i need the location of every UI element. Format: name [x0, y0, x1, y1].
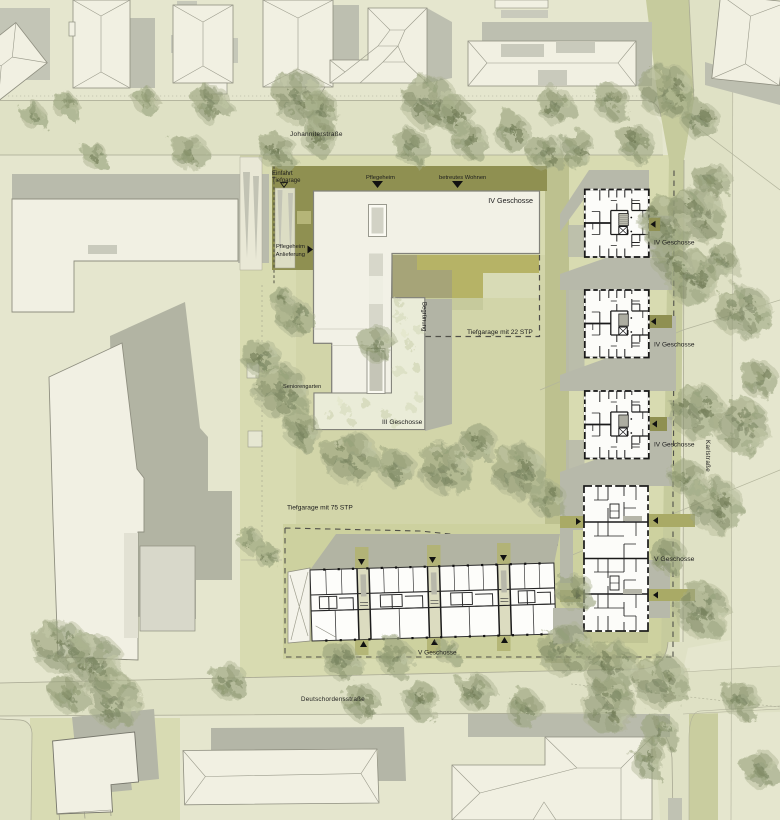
svg-text:Begrünung: Begrünung [421, 302, 427, 331]
svg-text:Pflegeheim: Pflegeheim [276, 244, 305, 250]
svg-text:Johanniterstraße: Johanniterstraße [290, 131, 343, 138]
svg-text:V Geschosse: V Geschosse [418, 650, 457, 657]
svg-text:Tiefgarage mit 22 STP: Tiefgarage mit 22 STP [467, 329, 533, 336]
svg-text:IV Geschosse: IV Geschosse [654, 342, 695, 349]
svg-text:Karlstraße: Karlstraße [704, 440, 711, 472]
svg-text:III Geschosse: III Geschosse [382, 419, 423, 426]
svg-text:Pflegeheim: Pflegeheim [366, 175, 395, 181]
svg-text:IV Geschosse: IV Geschosse [488, 196, 533, 205]
svg-text:Anlieferung: Anlieferung [276, 252, 305, 258]
svg-text:Einfahrt: Einfahrt [272, 171, 293, 177]
svg-text:betreutes Wohnen: betreutes Wohnen [439, 175, 486, 181]
svg-text:IV Geschosse: IV Geschosse [654, 442, 695, 449]
svg-text:Tiefgarage mit 75 STP: Tiefgarage mit 75 STP [287, 505, 353, 512]
svg-text:IV Geschosse: IV Geschosse [654, 240, 695, 247]
svg-text:Seniorengarten: Seniorengarten [283, 384, 321, 390]
svg-text:V Geschosse: V Geschosse [654, 556, 695, 563]
svg-text:Deutschordensstraße: Deutschordensstraße [301, 696, 365, 703]
svg-text:Tiefgarage: Tiefgarage [272, 178, 301, 184]
